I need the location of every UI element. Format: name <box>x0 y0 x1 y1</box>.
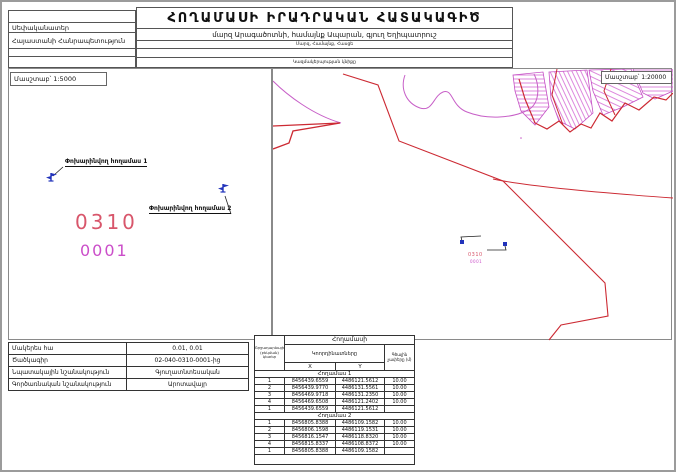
y-cell: 4486131.5561 <box>336 385 385 392</box>
x-column-header: X <box>285 363 336 371</box>
flag-marker-icon <box>218 184 229 192</box>
y-cell: 4486121.5612 <box>336 406 385 413</box>
plot-marker <box>487 242 507 250</box>
parcel-number-text-small: 0001 <box>470 259 482 264</box>
detail-map-scale: Մասշտաբ՝ 1:5000 <box>10 72 107 86</box>
attr-value: 02-040-0310-0001-ից <box>127 355 249 367</box>
point-number-cell: 3 <box>255 434 285 441</box>
y-column-header: Y <box>336 363 385 371</box>
y-cell: 4486109.1582 <box>336 448 385 455</box>
x-cell: 8456439.6559 <box>285 378 336 385</box>
y-cell: 4486109.1582 <box>336 420 385 427</box>
table-row: 2 8456806.1598 4486119.1531 10.00 <box>255 427 415 434</box>
y-cell: 4486119.1531 <box>336 427 385 434</box>
empty-cell <box>255 455 415 465</box>
table-row: 1 8456439.6559 4486121.5612 10.00 <box>255 378 415 385</box>
parcel-code-text: 0310 <box>75 210 138 234</box>
length-cell: 10.00 <box>385 420 415 427</box>
point-number-cell: 2 <box>255 427 285 434</box>
table-row: 1 8456805.8388 4486109.1582 <box>255 448 415 455</box>
section-header: Հողամաս 1 <box>255 371 415 378</box>
point-number-cell: 1 <box>255 420 285 427</box>
x-cell: 8456439.9770 <box>285 385 336 392</box>
attr-label: Մակերես հա <box>9 343 127 355</box>
address-line: մարզ Արագածոտնի, համայնք Ապարան, գյուղ Ե… <box>137 28 512 40</box>
table-row: Ծածկագիր 02-040-0310-0001-ից <box>9 355 249 367</box>
owner-block: Սեփականատեր Հայաստանի Հանրապետություն <box>8 10 136 68</box>
length-cell: 10.00 <box>385 434 415 441</box>
table-row: Շրջադարձային (բեկման) կետեր Հողամասի <box>255 336 415 345</box>
table-row: Մակերես հա 0.01, 0.01 <box>9 343 249 355</box>
length-cell <box>385 406 415 413</box>
length-cell: 10.00 <box>385 385 415 392</box>
section-header: Հողամաս 2 <box>255 413 415 420</box>
attr-label: Գործառնական նշանակություն <box>9 379 127 391</box>
coordinates-column-header: Կոորդինատները <box>285 345 385 363</box>
stamp-caption: Կազմակերպության կնիքը <box>137 57 512 67</box>
point-number-cell: 1 <box>255 378 285 385</box>
parcel-code-text-small: 0310 <box>468 252 483 258</box>
table-row: Հողամաս 2 <box>255 413 415 420</box>
coords-table-title: Հողամասի <box>285 336 415 345</box>
length-cell: 10.00 <box>385 378 415 385</box>
cadastral-plan-page: Սեփականատեր Հայաստանի Հանրապետություն ՀՈ… <box>0 0 676 472</box>
overview-map-panel: 0310 0001 Մասշտաբ՝ 1:20000 <box>272 68 672 340</box>
table-row: 1 8456805.8388 4486109.1582 10.00 <box>255 420 415 427</box>
attr-label: Նպատակային նշանակություն <box>9 367 127 379</box>
contour-dot <box>520 137 522 139</box>
length-cell: 10.00 <box>385 392 415 399</box>
detail-map-panel: Մասշտաբ՝ 1:5000 Փոխարինվող հողամաս 1 Փոխ… <box>8 68 272 340</box>
title-block: ՀՈՂԱՄԱՍԻ ԻՐԱԴՐԱԿԱՆ ՀԱՏԱԿԱԳԻԾ մարզ Արագած… <box>136 7 513 68</box>
page-title: ՀՈՂԱՄԱՍԻ ԻՐԱԴՐԱԿԱՆ ՀԱՏԱԿԱԳԻԾ <box>137 8 512 28</box>
x-cell: 8456806.1598 <box>285 427 336 434</box>
x-cell: 8456439.6559 <box>285 406 336 413</box>
title-block-empty-row <box>137 48 512 57</box>
parcel-attributes-table: Մակերես հա 0.01, 0.01 Ծածկագիր 02-040-03… <box>8 342 249 391</box>
flag-marker-icon <box>46 173 57 181</box>
owner-block-empty-row <box>9 11 135 22</box>
plot-marker <box>460 236 481 244</box>
points-column-header: Շրջադարձային (բեկման) կետեր <box>255 336 285 371</box>
point-number-cell: 3 <box>255 392 285 399</box>
point-number-cell: 1 <box>255 448 285 455</box>
length-cell: 10.00 <box>385 399 415 406</box>
length-column-header: Գծային չափերը (մ) <box>385 345 415 371</box>
overview-map-scale: Մասշտաբ՝ 1:20000 <box>601 71 672 84</box>
boundary-line <box>493 179 673 198</box>
point-number-cell: 4 <box>255 441 285 448</box>
attr-value: 0.01, 0.01 <box>127 343 249 355</box>
point-number-cell: 2 <box>255 385 285 392</box>
y-cell: 4486131.2350 <box>336 392 385 399</box>
y-cell: 4486121.5612 <box>336 378 385 385</box>
x-cell: 8456469.9718 <box>285 392 336 399</box>
owner-block-empty-row <box>9 48 135 56</box>
table-row: Գործառնական նշանակություն Արոտավայր <box>9 379 249 391</box>
length-cell: 10.00 <box>385 427 415 434</box>
attr-value: Արոտավայր <box>127 379 249 391</box>
point-number-cell: 1 <box>255 406 285 413</box>
y-cell: 4486118.8320 <box>336 434 385 441</box>
y-cell: 4486121.2402 <box>336 399 385 406</box>
y-cell: 4486108.8372 <box>336 441 385 448</box>
table-row: 4 8456469.6508 4486121.2402 10.00 <box>255 399 415 406</box>
table-row <box>255 455 415 465</box>
point-number-cell: 4 <box>255 399 285 406</box>
table-row: 4 8456815.8337 4486108.8372 10.00 <box>255 441 415 448</box>
detail-map-drawing <box>9 69 273 341</box>
x-cell: 8456469.6508 <box>285 399 336 406</box>
owner-value: Հայաստանի Հանրապետություն <box>9 32 135 48</box>
boundary-line <box>273 123 340 149</box>
x-cell: 8456805.8388 <box>285 420 336 427</box>
table-row: Հողամաս 1 <box>255 371 415 378</box>
table-row: 2 8456439.9770 4486131.5561 10.00 <box>255 385 415 392</box>
address-caption: Մարզ, Համայնք, Հասցե <box>137 40 512 48</box>
attr-label: Ծածկագիր <box>9 355 127 367</box>
owner-block-empty-row <box>9 56 135 67</box>
x-cell: 8456816.1547 <box>285 434 336 441</box>
plot2-callout-label: Փոխարինվող հողամաս 2 <box>149 205 231 214</box>
attr-value: Գյուղատնտեսական <box>127 367 249 379</box>
table-row: 3 8456816.1547 4486118.8320 10.00 <box>255 434 415 441</box>
coordinates-table: Շրջադարձային (բեկման) կետեր Հողամասի Կոո… <box>254 335 415 465</box>
length-cell: 10.00 <box>385 441 415 448</box>
table-row: 1 8456439.6559 4486121.5612 <box>255 406 415 413</box>
parcel-number-text: 0001 <box>80 241 129 260</box>
owner-label: Սեփականատեր <box>9 22 135 32</box>
contour-line <box>273 81 341 123</box>
x-cell: 8456805.8388 <box>285 448 336 455</box>
length-cell <box>385 448 415 455</box>
plot1-callout-label: Փոխարինվող հողամաս 1 <box>65 158 147 167</box>
table-row: 3 8456469.9718 4486131.2350 10.00 <box>255 392 415 399</box>
x-cell: 8456815.8337 <box>285 441 336 448</box>
table-row: Նպատակային նշանակություն Գյուղատնտեսական <box>9 367 249 379</box>
overview-map-drawing: 0310 0001 <box>273 69 673 341</box>
